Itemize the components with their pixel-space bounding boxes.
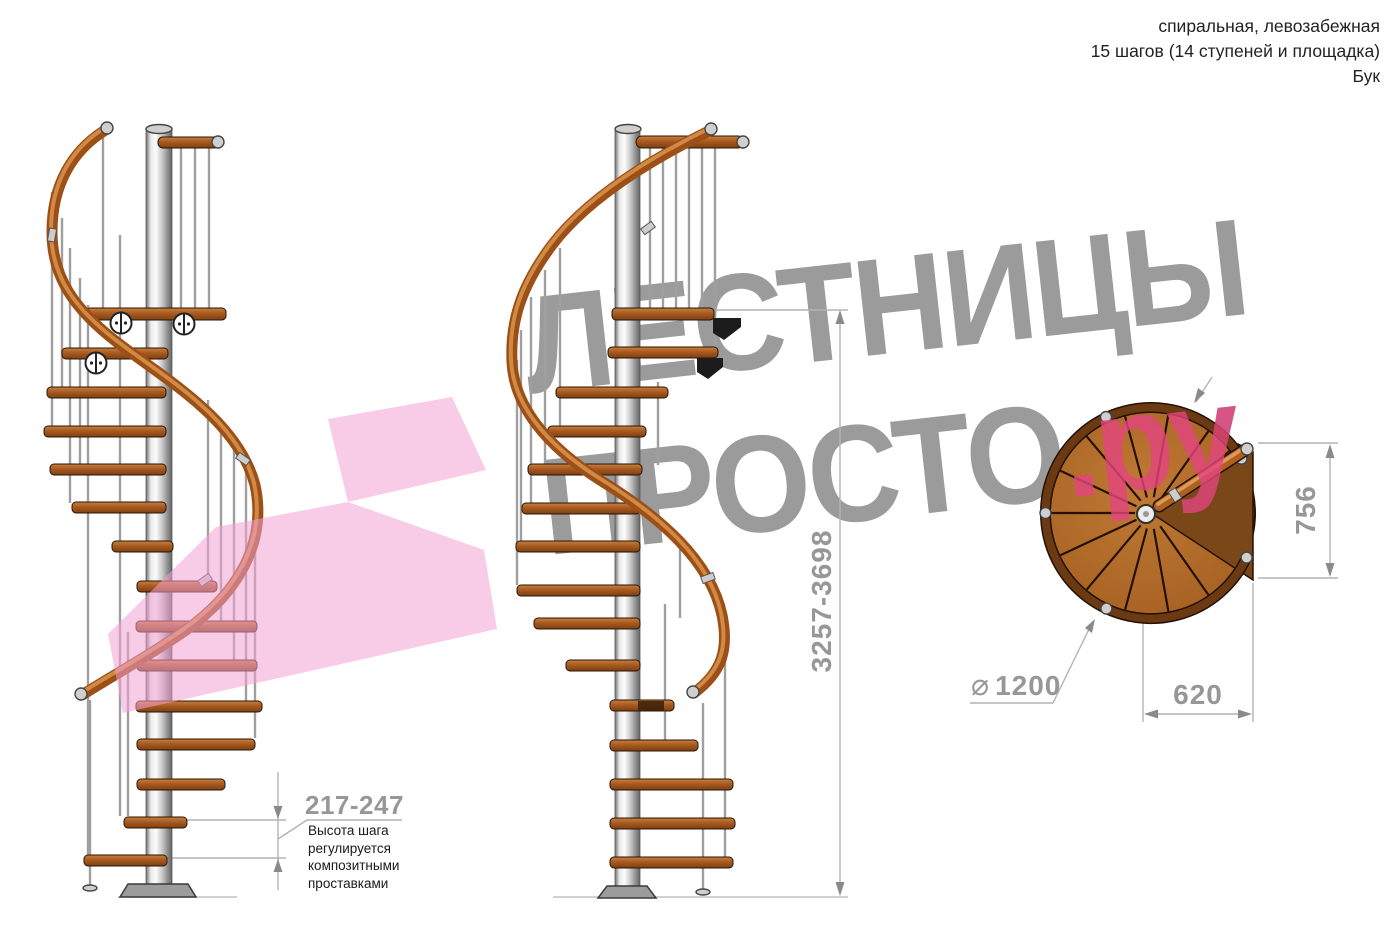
steps [516, 308, 735, 868]
dim-landing-width-label: 620 [1173, 679, 1223, 711]
dim-total-height-label: 3257-3698 [806, 530, 838, 673]
pole-top-cap [146, 125, 172, 134]
dim-landing-depth-label: 756 [1290, 485, 1322, 535]
top-view [1040, 408, 1255, 619]
landing-rail-bar [158, 137, 220, 148]
side-view-main [44, 122, 262, 897]
side-view-secondary [511, 123, 749, 898]
diameter-icon: ⌀ [971, 669, 989, 702]
base-plate [598, 886, 656, 898]
dim-diameter-label: ⌀1200 [971, 668, 1061, 703]
header-material: Бук [1091, 64, 1380, 89]
staircase-technical-drawing [0, 0, 1400, 948]
base-plate [120, 884, 196, 897]
header-steps: 15 шагов (14 ступеней и площадка) [1091, 39, 1380, 64]
note-step-height: Высота шага регулируется композитными пр… [308, 822, 399, 892]
header-type: спиральная, левозабежная [1091, 14, 1380, 39]
dim-step-height-label: 217-247 [305, 790, 404, 821]
drawing-title-block: спиральная, левозабежная 15 шагов (14 ст… [1091, 14, 1380, 89]
pole-top-cap [615, 125, 641, 134]
